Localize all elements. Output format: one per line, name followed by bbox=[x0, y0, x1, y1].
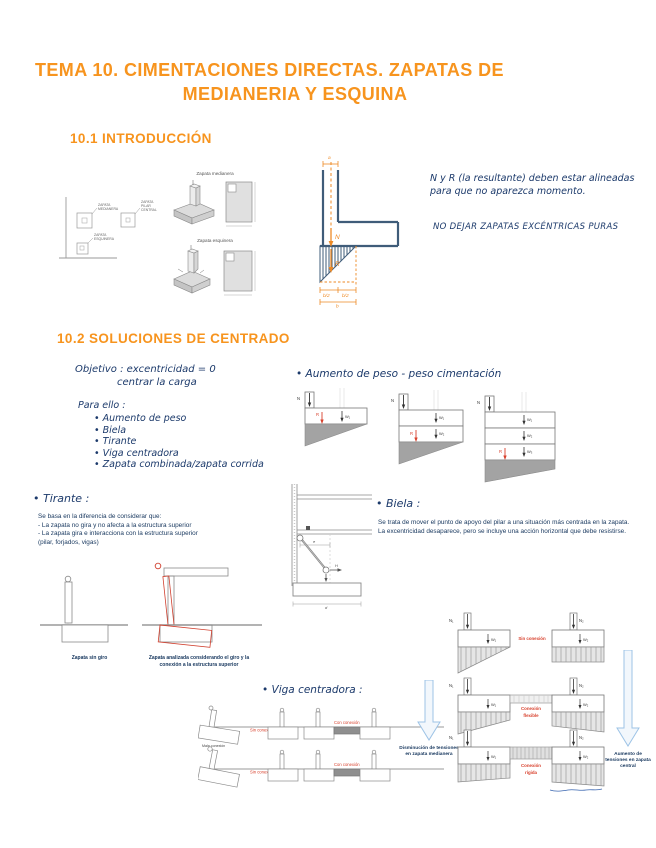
biela-dim-h: H bbox=[335, 563, 338, 568]
page-title-line2: MEDIANERIA Y ESQUINA bbox=[35, 82, 555, 106]
fig-zapata-esquinera-drawing bbox=[170, 243, 260, 300]
aumento2-w2: W₂ bbox=[439, 431, 445, 436]
svg-text:MEDIANERA: MEDIANERA bbox=[98, 207, 119, 211]
biela-mechanism-drawing: e H d bbox=[280, 476, 374, 610]
svg-text:W₂: W₂ bbox=[583, 637, 589, 642]
viga-label-con-2: Con conexión bbox=[334, 762, 360, 767]
aumento1-r: R bbox=[316, 412, 319, 417]
scheme-dim-a: a bbox=[328, 156, 331, 161]
svg-text:R: R bbox=[499, 449, 502, 454]
pen-scribble bbox=[550, 789, 602, 791]
conexion1-n2: N₂ bbox=[579, 618, 584, 623]
fig-zapata-esquinera: Zapata esquinera bbox=[170, 238, 260, 300]
scheme-r-label: R bbox=[335, 261, 340, 268]
objective-line2: centrar la carga bbox=[75, 376, 216, 389]
biela-body: Se trata de mover el punto de apoyo del … bbox=[378, 519, 636, 537]
fig-zapata-medianera: Zapata medianera bbox=[170, 171, 260, 230]
note-resultante: N y R (la resultante) deben estar alinea… bbox=[430, 172, 635, 198]
svg-text:CENTRAL: CENTRAL bbox=[141, 208, 157, 212]
aumento3-n: N bbox=[477, 400, 480, 405]
method-item: Biela bbox=[94, 425, 264, 437]
conexion3-label-2: rígida bbox=[525, 770, 538, 775]
scheme-dim-b2: b/2 bbox=[342, 293, 349, 299]
svg-text:W₁: W₁ bbox=[491, 754, 497, 759]
caption-zapata-con-giro: Zapata analizada considerando el giro y … bbox=[138, 655, 260, 668]
tirante-heading: • Tirante : bbox=[33, 492, 89, 505]
method-item: Zapata combinada/zapata corrida bbox=[94, 459, 264, 471]
viga-label-mala: Mala conexión bbox=[202, 744, 225, 748]
conexion2-label-1: Conexión bbox=[521, 706, 541, 711]
aumento3-w3: W₃ bbox=[527, 449, 533, 454]
para-ello-block: Para ello : Aumento de peso Biela Tirant… bbox=[78, 400, 264, 471]
objective-line1: Objetivo : excentricidad = 0 bbox=[75, 363, 216, 376]
aumento1-n: N bbox=[297, 396, 300, 401]
viga-centradora-sketches: Sin conexión Con conexión Mala conexión … bbox=[198, 697, 448, 793]
fig-zapata-medianera-drawing bbox=[170, 176, 260, 230]
biela-dim-d: d bbox=[325, 605, 328, 610]
biela-heading: • Biela : bbox=[376, 497, 420, 510]
conexion-row-sin: N₁ W₁ Sin conexión N₂ W₂ bbox=[448, 611, 608, 675]
arrow-down-right-icon bbox=[616, 650, 640, 748]
viga-label-con-1: Con conexión bbox=[334, 720, 360, 725]
biela-dim-e: e bbox=[313, 539, 316, 544]
note-no-dejar: NO DEJAR ZAPATAS EXCÉNTRICAS PURAS bbox=[433, 222, 638, 232]
aumento1-w1: W₁ bbox=[345, 414, 351, 419]
section-10-1-heading: 10.1 INTRODUCCIÓN bbox=[70, 131, 212, 146]
aumento-diagram-1: N W₁ R bbox=[296, 388, 376, 448]
svg-text:W₂: W₂ bbox=[583, 754, 589, 759]
aumento2-n: N bbox=[391, 398, 394, 403]
plan-sketch-zapatas: ZAPATA MEDIANERA ZAPATA PILAR CENTRAL ZA… bbox=[55, 192, 167, 267]
svg-text:W₁: W₁ bbox=[527, 417, 533, 422]
svg-text:W₁: W₁ bbox=[491, 702, 497, 707]
notes-page: TEMA 10. CIMENTACIONES DIRECTAS. ZAPATAS… bbox=[0, 0, 656, 848]
scheme-n-label: N bbox=[335, 234, 340, 241]
conexion3-label-1: Conexión bbox=[521, 763, 541, 768]
svg-text:W₂: W₂ bbox=[527, 433, 533, 438]
page-title-line1: TEMA 10. CIMENTACIONES DIRECTAS. ZAPATAS… bbox=[35, 58, 555, 82]
aumento-heading: • Aumento de peso - peso cimentación bbox=[296, 368, 501, 380]
conexion1-label: Sin conexión bbox=[518, 636, 546, 641]
fig-zapata-sin-giro bbox=[40, 570, 140, 648]
method-item: Aumento de peso bbox=[94, 413, 264, 425]
scheme-dim-b1: b/2 bbox=[323, 293, 330, 299]
viga-heading: • Viga centradora : bbox=[262, 684, 363, 696]
svg-text:N₁: N₁ bbox=[449, 683, 454, 688]
conexion1-n1: N₁ bbox=[449, 618, 454, 623]
fig-zapata-con-giro bbox=[140, 558, 270, 653]
scheme-dim-b: b bbox=[336, 304, 339, 309]
conexion2-label-2: flexible bbox=[523, 713, 539, 718]
svg-text:N₂: N₂ bbox=[579, 735, 584, 740]
aumento-diagram-3: N W₁ W₂ W₃ R bbox=[476, 392, 564, 484]
conexion-row-rigida: N₁ W₁ Conexión rígida N₂ W₂ bbox=[448, 728, 608, 794]
svg-text:N₂: N₂ bbox=[579, 683, 584, 688]
objective-block: Objetivo : excentricidad = 0 centrar la … bbox=[75, 363, 216, 389]
scheme-medianera-section: N R a b/2 b/2 b bbox=[292, 146, 427, 308]
svg-text:R: R bbox=[410, 431, 413, 436]
page-title: TEMA 10. CIMENTACIONES DIRECTAS. ZAPATAS… bbox=[35, 58, 555, 106]
aumento-diagram-2: N W₁ W₂ R bbox=[390, 390, 472, 466]
section-10-2-heading: 10.2 SOLUCIONES DE CENTRADO bbox=[57, 331, 290, 346]
svg-text:W₁: W₁ bbox=[439, 415, 445, 420]
svg-text:W₁: W₁ bbox=[491, 637, 497, 642]
svg-text:N₁: N₁ bbox=[449, 735, 454, 740]
caption-zapata-sin-giro: Zapata sin giro bbox=[42, 655, 137, 661]
methods-list: Aumento de peso Biela Tirante Viga centr… bbox=[78, 413, 264, 471]
method-item: Tirante bbox=[94, 436, 264, 448]
svg-text:W₂: W₂ bbox=[583, 702, 589, 707]
svg-text:ESQUINERA: ESQUINERA bbox=[94, 237, 115, 241]
caption-aumento-tensiones: Aumento de tensiones en zapata central bbox=[603, 752, 653, 771]
arrow-down-left-icon bbox=[417, 680, 441, 742]
method-item: Viga centradora bbox=[94, 448, 264, 460]
para-ello-label: Para ello : bbox=[78, 400, 264, 411]
tirante-body: Se basa en la diferencia de considerar q… bbox=[38, 513, 286, 547]
